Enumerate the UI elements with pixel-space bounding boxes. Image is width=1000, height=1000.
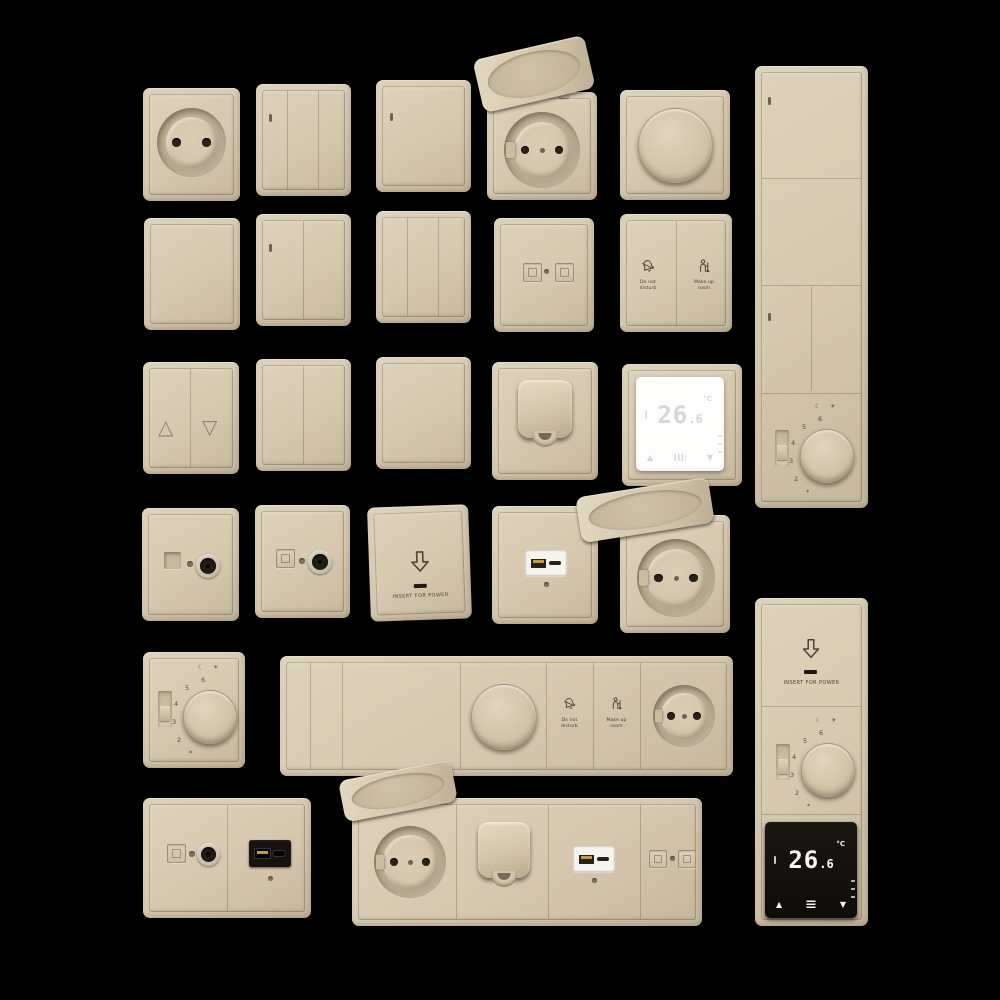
coax-connector — [308, 550, 332, 574]
rocker-divider — [318, 91, 319, 189]
temperature-decimal: .6 — [688, 412, 702, 426]
product-render-scene: ☾ ☀ 6 5 4 3 2 * — [0, 0, 1000, 1000]
housekeeper-icon — [696, 258, 712, 274]
section-divider — [593, 663, 594, 769]
sun-icon: ☀ — [831, 717, 836, 724]
dial-number: 6 — [818, 415, 822, 423]
screw-dot — [189, 851, 195, 857]
rocker-divider — [303, 221, 304, 319]
screw-dot — [544, 269, 549, 274]
dial-number: 2 — [795, 789, 799, 797]
switch-2gang-plate — [256, 359, 351, 471]
sun-icon: ☀ — [213, 664, 218, 671]
usb-a-port — [531, 559, 546, 568]
dial-number: 4 — [174, 700, 178, 708]
dnd-mur-plate: Do notdisturb Make uproom — [620, 214, 732, 332]
thermostat-black: 26.6 °C ▲ ▼ — [765, 822, 857, 918]
moon-icon: ☾ — [198, 664, 203, 671]
dial-number: 6 — [819, 729, 823, 737]
frost-icon: * — [807, 802, 810, 810]
socket-center-dot — [682, 714, 687, 719]
keystone-port — [276, 549, 295, 568]
card-slot — [414, 584, 427, 588]
thermostat-dial: ☾ ☀ 6 5 4 3 2 * — [761, 396, 861, 502]
menu-icon — [807, 900, 816, 908]
thermostat-dial-plate: ☾ ☀ 6 5 4 3 2 * — [143, 652, 245, 768]
screw-dot — [670, 856, 675, 861]
arrow-down-icon — [405, 548, 434, 577]
switch-2gang-plate — [256, 214, 351, 326]
mode-slider — [775, 430, 789, 466]
dial-number: 3 — [789, 457, 793, 465]
dial-number: 4 — [791, 439, 795, 447]
indicator-dot — [390, 113, 393, 121]
keystone-port — [523, 263, 542, 282]
screw-dot — [187, 561, 193, 567]
usb-outlet — [573, 846, 615, 872]
section-divider — [640, 805, 641, 919]
temp-down-button: ▼ — [840, 901, 846, 909]
frost-icon: * — [189, 749, 192, 757]
temperature-value: 26 — [657, 401, 688, 429]
keystone-port — [167, 844, 186, 863]
rocker-divider — [811, 287, 812, 391]
sun-icon: ☀ — [830, 403, 835, 410]
cable-outlet-plate — [492, 362, 598, 480]
temp-up-button: ▲ — [776, 901, 782, 909]
dial-number: 6 — [201, 676, 205, 684]
plate-face — [150, 224, 234, 324]
mode-slider — [158, 691, 172, 727]
tv-socket-plate — [142, 508, 239, 621]
round-socket-plate — [143, 88, 240, 201]
rocker-divider — [287, 91, 288, 189]
earth-clip — [655, 709, 662, 722]
vertical-panel-2: INSERT FOR POWER ☾ ☀ 6 5 4 3 2 * 26.6 °C… — [755, 598, 868, 926]
keycard-holder-plate: INSERT FOR POWER — [367, 504, 472, 621]
rocker-divider — [438, 218, 439, 316]
housekeeper-icon — [609, 696, 624, 711]
mur-label: Make uproom — [594, 718, 639, 730]
outlet-hood — [478, 822, 530, 878]
keystone-port — [555, 263, 574, 282]
dial-number: 5 — [802, 423, 806, 431]
section-divider — [310, 663, 311, 769]
usb-c-port — [597, 857, 609, 862]
section-divider — [762, 706, 861, 707]
rocker-divider — [303, 366, 304, 464]
schuko-socket — [637, 539, 715, 617]
keystone-port — [649, 850, 667, 868]
coax-connector — [197, 843, 220, 866]
usb-c-port — [273, 851, 285, 856]
dial-number: 2 — [177, 736, 181, 744]
blinds-switch-plate: △ ▽ — [143, 362, 239, 474]
temperature-value: 26 — [788, 846, 819, 874]
usb-outlet-black — [249, 840, 291, 867]
heat-indicator — [645, 411, 647, 419]
usb-a-port — [255, 849, 270, 858]
section-divider — [762, 285, 861, 286]
arrow-down-icon — [798, 636, 824, 662]
keystone-port — [678, 850, 696, 868]
section-divider — [546, 663, 547, 769]
screw-dot — [268, 876, 273, 881]
plate-face — [262, 90, 345, 190]
temperature-display: 26.6 — [765, 846, 857, 874]
tv-data-socket-plate — [255, 505, 350, 618]
thermostat-white-plate: 26.6 °C ▲ ▼ — [622, 364, 742, 486]
side-button — [851, 896, 855, 898]
dial-number: 3 — [790, 771, 794, 779]
heat-grill-icon — [675, 454, 686, 461]
coax-connector — [196, 554, 220, 578]
socket-hole-right — [689, 574, 698, 583]
indicator-dot — [768, 97, 771, 105]
heat-indicator — [774, 856, 776, 864]
usb-a-port — [579, 855, 594, 864]
bell-slash-icon — [640, 258, 656, 274]
earth-clip — [376, 854, 384, 869]
side-button — [851, 888, 855, 890]
plate-face — [382, 86, 465, 186]
tv-usb-double-plate — [143, 798, 311, 918]
blinds-up-icon: △ — [158, 417, 173, 437]
switch-1gang-plate — [376, 357, 471, 469]
temp-up-button: ▲ — [647, 454, 653, 462]
horizontal-panel-2 — [352, 798, 702, 926]
celsius-unit: °C — [703, 395, 712, 403]
plate-face — [500, 224, 588, 326]
switch-3gang-plate — [376, 211, 471, 323]
temperature-decimal: .6 — [819, 857, 833, 871]
frost-icon: * — [806, 488, 809, 496]
section-divider — [227, 805, 228, 911]
side-button — [718, 443, 722, 445]
dimmer-knob — [638, 108, 713, 183]
rocker-divider — [190, 369, 191, 467]
earth-clip — [506, 142, 514, 158]
dnd-label: Do notdisturb — [547, 718, 592, 730]
mode-slider — [776, 744, 790, 780]
card-slot — [804, 670, 817, 674]
dial-number: 3 — [172, 718, 176, 726]
plate-face — [382, 217, 465, 317]
thermostat-white: 26.6 °C ▲ ▼ — [636, 377, 724, 471]
dimmer-plate — [620, 90, 730, 200]
bell-slash-icon — [562, 696, 577, 711]
blinds-down-icon: ▽ — [202, 417, 217, 437]
thermostat-dial: ☾ ☀ 6 5 4 3 2 * — [144, 657, 244, 763]
schuko-socket — [653, 685, 715, 747]
round-socket — [157, 108, 226, 177]
screw-dot — [299, 558, 305, 564]
socket-center-dot — [674, 576, 679, 581]
blank-plate — [144, 218, 240, 330]
socket-hole-left — [172, 138, 181, 147]
dial-knob — [801, 743, 855, 797]
temp-down-button: ▼ — [707, 454, 713, 462]
coax-pin — [206, 852, 211, 857]
screw-dot — [592, 878, 597, 883]
dial-number: 2 — [794, 475, 798, 483]
socket-center-dot — [408, 860, 413, 865]
section-divider — [456, 805, 457, 919]
side-button — [718, 435, 722, 437]
dimmer-knob — [471, 684, 537, 750]
temperature-display: 26.6 — [636, 401, 724, 429]
schuko-socket — [374, 826, 446, 898]
socket-center-dot — [540, 148, 545, 153]
celsius-unit: °C — [836, 840, 845, 848]
rocker-divider — [407, 218, 408, 316]
section-divider — [342, 663, 343, 769]
mur-label: Make uproom — [680, 280, 728, 292]
socket-hole-left — [654, 574, 663, 583]
outlet-hood — [518, 380, 572, 438]
moon-icon: ☾ — [816, 717, 821, 724]
thermostat-dial: ☾ ☀ 6 5 4 3 2 * — [762, 710, 862, 816]
indicator-dot — [269, 244, 272, 252]
side-button — [851, 880, 855, 882]
section-divider — [460, 663, 461, 769]
module-recess — [164, 552, 181, 569]
section-divider — [762, 178, 861, 179]
vertical-panel-1: ☾ ☀ 6 5 4 3 2 * — [755, 66, 868, 508]
usb-outlet — [525, 550, 567, 576]
moon-icon: ☾ — [815, 403, 820, 410]
section-divider — [762, 393, 861, 394]
dial-knob — [183, 690, 237, 744]
socket-hole-right — [202, 138, 211, 147]
earth-clip — [639, 570, 648, 586]
usb-c-port — [549, 561, 561, 566]
indicator-dot — [269, 114, 272, 122]
side-button — [718, 451, 722, 453]
switch-1gang-plate — [376, 80, 471, 192]
rocker-divider — [676, 221, 677, 325]
indicator-dot — [768, 313, 771, 321]
dial-number: 5 — [803, 737, 807, 745]
dial-number: 4 — [792, 753, 796, 761]
switch-3gang-plate — [256, 84, 351, 196]
data-socket-plate — [494, 218, 594, 332]
insert-for-power-label: INSERT FOR POWER — [755, 680, 868, 686]
dial-knob — [800, 429, 854, 483]
plate-face — [382, 363, 465, 463]
section-divider — [548, 805, 549, 919]
schuko-socket — [504, 112, 580, 188]
screw-dot — [544, 582, 549, 587]
dial-number: 5 — [185, 684, 189, 692]
horizontal-panel-1: Do notdisturb Make uproom — [280, 656, 733, 776]
section-divider — [640, 663, 641, 769]
dnd-label: Do notdisturb — [624, 280, 672, 292]
